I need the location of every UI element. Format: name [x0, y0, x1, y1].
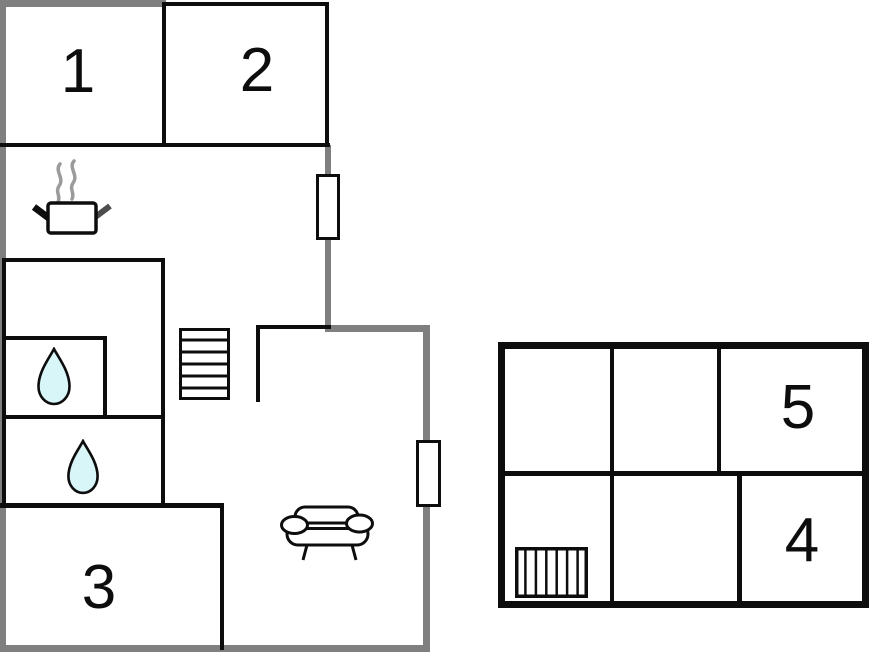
water-drop-icon — [67, 439, 99, 495]
room-label-4: 4 — [772, 506, 832, 576]
steam-icon — [58, 164, 61, 202]
annex-divider-bottom-left — [610, 471, 614, 608]
hall-wall-horizontal — [256, 325, 331, 329]
rooms12-bottom-wall — [0, 143, 330, 147]
outer-wall-top — [0, 0, 166, 7]
cooking-pot-icon — [26, 156, 114, 238]
room3-wall-right — [220, 503, 224, 650]
outer-wall-bottom — [0, 645, 430, 652]
room-label-2: 2 — [227, 36, 287, 106]
annex-divider-top-left — [610, 342, 614, 476]
wc-wall-right — [103, 336, 107, 419]
bathroom-divider-wall — [2, 415, 165, 419]
annex-divider-horizontal — [498, 471, 869, 476]
outer-wall-mid-horizontal — [325, 325, 430, 332]
radiator-icon — [515, 547, 588, 598]
hall-wall-vertical — [256, 325, 260, 402]
room-label-5: 5 — [768, 373, 828, 443]
sofa-icon — [280, 498, 375, 563]
room-label-3: 3 — [69, 553, 129, 623]
water-drop-icon — [37, 347, 71, 406]
steam-icon — [72, 161, 75, 199]
window-upper — [316, 174, 340, 240]
annex-divider-bottom-right — [737, 471, 742, 608]
room-label-1: 1 — [48, 37, 108, 107]
stairs-icon — [179, 328, 230, 400]
annex-divider-top-right — [717, 342, 721, 476]
window-lower — [416, 440, 441, 507]
room3-wall-top — [0, 503, 224, 508]
floor-plan: 1 2 3 5 4 — [0, 0, 873, 652]
wc-wall-top — [2, 336, 107, 340]
